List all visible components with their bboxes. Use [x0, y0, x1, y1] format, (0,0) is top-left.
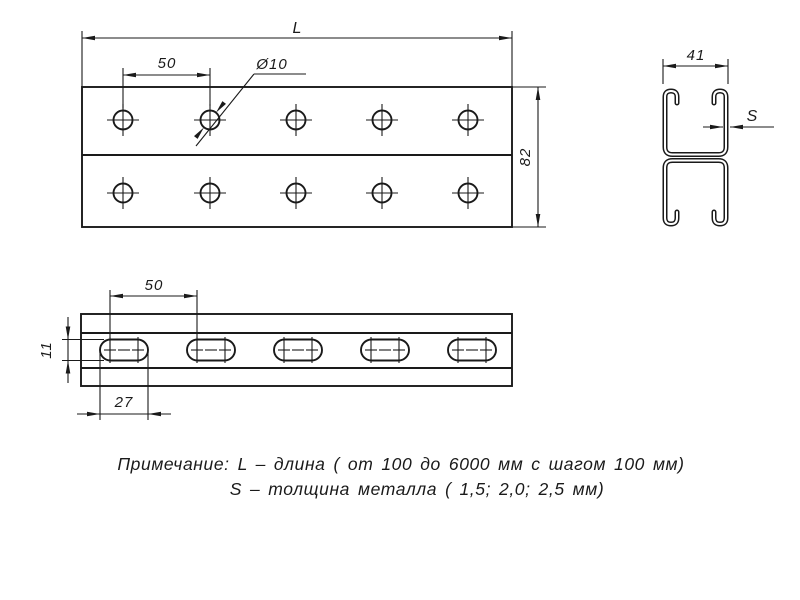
top-view: L 50 Ø10 82 — [82, 20, 546, 227]
side-view: 50 11 27 — [38, 277, 512, 420]
technical-drawing-sheet: L 50 Ø10 82 — [0, 0, 800, 600]
plate-outline — [82, 87, 512, 227]
dimension-hole-spacing-50: 50 — [123, 55, 210, 108]
dimension-slot-height-11: 11 — [38, 317, 104, 383]
drawing-svg: L 50 Ø10 82 — [0, 0, 800, 600]
dimension-width-41: 41 — [663, 47, 728, 84]
dimension-length-L: L — [82, 20, 512, 87]
dimension-height-82: 82 — [512, 87, 546, 227]
dim-label-50-side: 50 — [145, 277, 164, 294]
hole-row-bottom — [107, 177, 484, 209]
dim-label-50-top: 50 — [158, 55, 177, 72]
note-line-1: Примечание: L – длина ( от 100 до 6000 м… — [117, 454, 684, 474]
drawing-note: Примечание: L – длина ( от 100 до 6000 м… — [117, 454, 684, 499]
dim-label-41: 41 — [687, 47, 706, 64]
slot-row — [100, 337, 496, 363]
dim-label-S: S — [747, 108, 758, 125]
dim-label-82: 82 — [517, 148, 534, 167]
dim-label-L: L — [293, 20, 302, 37]
dim-label-11: 11 — [38, 341, 55, 359]
dimension-hole-diameter: Ø10 — [194, 56, 306, 146]
hole-row-top — [107, 104, 484, 136]
dim-label-27: 27 — [114, 394, 134, 411]
dimension-thickness-S: S — [703, 108, 774, 129]
note-line-2: S – толщина металла ( 1,5; 2,0; 2,5 мм) — [230, 479, 605, 499]
lower-channel-profile — [665, 161, 726, 225]
dim-label-dia10: Ø10 — [255, 56, 287, 73]
upper-channel-profile — [665, 91, 726, 155]
section-view: 41 S — [663, 47, 774, 224]
